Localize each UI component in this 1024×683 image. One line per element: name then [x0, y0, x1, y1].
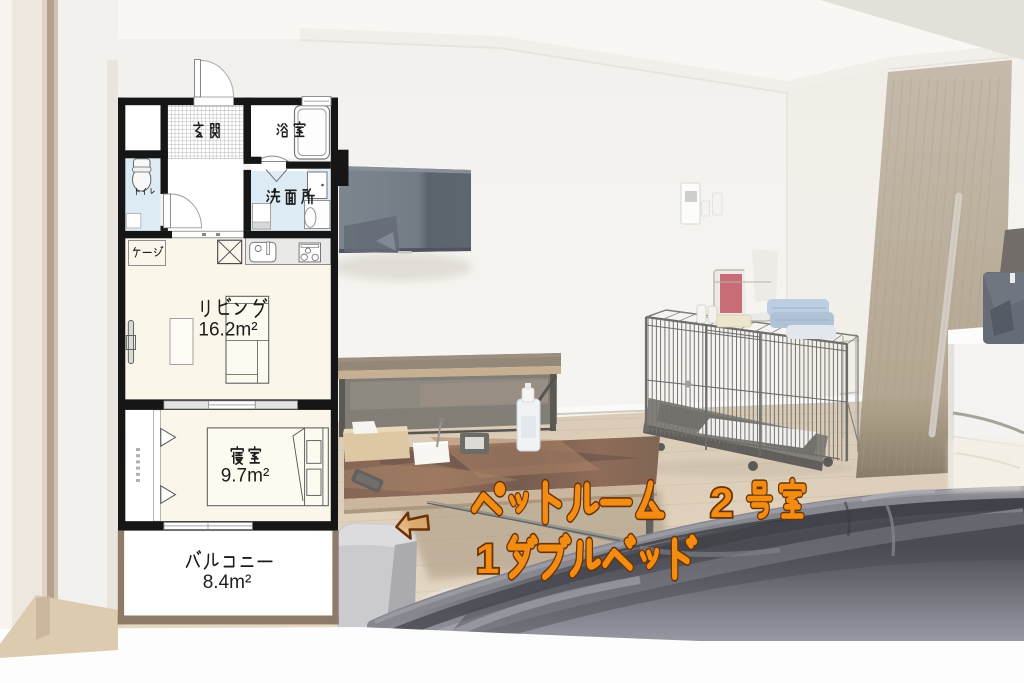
svg-text:2: 2 — [710, 479, 733, 526]
svg-text:8.4m²: 8.4m² — [203, 572, 252, 593]
svg-text:1: 1 — [476, 535, 499, 582]
svg-text:9.7m²: 9.7m² — [221, 466, 270, 487]
svg-text:16.2m²: 16.2m² — [198, 320, 257, 341]
